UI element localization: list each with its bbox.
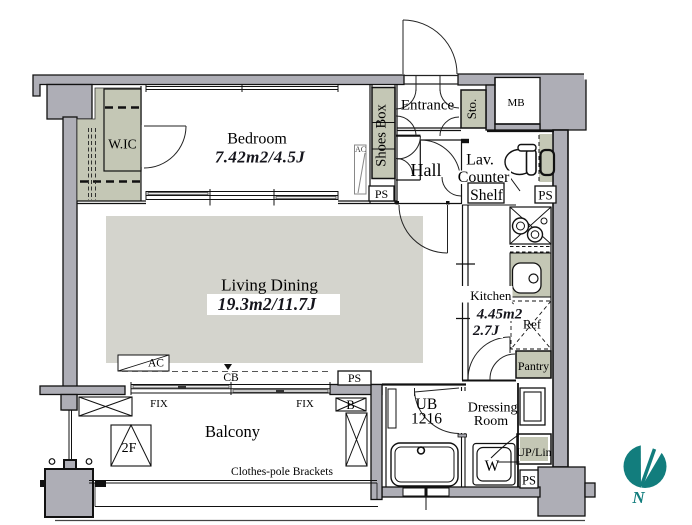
svg-text:Room: Room	[474, 414, 508, 429]
svg-text:FIX: FIX	[150, 398, 168, 410]
svg-text:AC: AC	[355, 145, 366, 154]
svg-text:2F: 2F	[122, 441, 137, 456]
svg-text:1216: 1216	[411, 411, 442, 428]
svg-text:19.3m2/11.7J: 19.3m2/11.7J	[218, 294, 318, 314]
svg-text:W.IC: W.IC	[108, 137, 136, 152]
svg-text:Clothes-pole Brackets: Clothes-pole Brackets	[231, 466, 333, 478]
svg-text:Bedroom: Bedroom	[227, 131, 287, 148]
svg-text:PS: PS	[348, 371, 361, 385]
svg-text:AC: AC	[148, 358, 164, 370]
svg-text:MB: MB	[507, 97, 524, 109]
svg-text:Hall: Hall	[411, 160, 442, 180]
svg-text:2.7J: 2.7J	[472, 323, 500, 339]
svg-text:UP/Lin: UP/Lin	[516, 445, 551, 459]
svg-text:7.42m2/4.5J: 7.42m2/4.5J	[215, 148, 305, 167]
svg-text:PS: PS	[522, 474, 536, 488]
svg-text:Ref: Ref	[523, 318, 542, 332]
svg-text:Shoes Box: Shoes Box	[374, 104, 390, 167]
svg-text:FIX: FIX	[296, 398, 314, 410]
svg-text:Living Dining: Living Dining	[221, 276, 318, 295]
svg-text:Shelf: Shelf	[470, 187, 504, 204]
svg-text:Pantry: Pantry	[518, 359, 549, 373]
svg-text:CB: CB	[223, 372, 239, 384]
svg-text:Balcony: Balcony	[205, 422, 261, 441]
svg-text:Lav.: Lav.	[466, 152, 494, 169]
svg-text:Entrance: Entrance	[401, 98, 455, 114]
svg-text:PS: PS	[375, 187, 388, 201]
svg-text:PS: PS	[538, 188, 552, 203]
svg-text:4.45m2: 4.45m2	[476, 307, 523, 323]
svg-text:W: W	[485, 458, 500, 475]
svg-text:N: N	[631, 488, 645, 507]
svg-text:B: B	[346, 398, 354, 412]
svg-text:Sto.: Sto.	[464, 99, 479, 120]
svg-text:Kitchen: Kitchen	[470, 288, 512, 303]
